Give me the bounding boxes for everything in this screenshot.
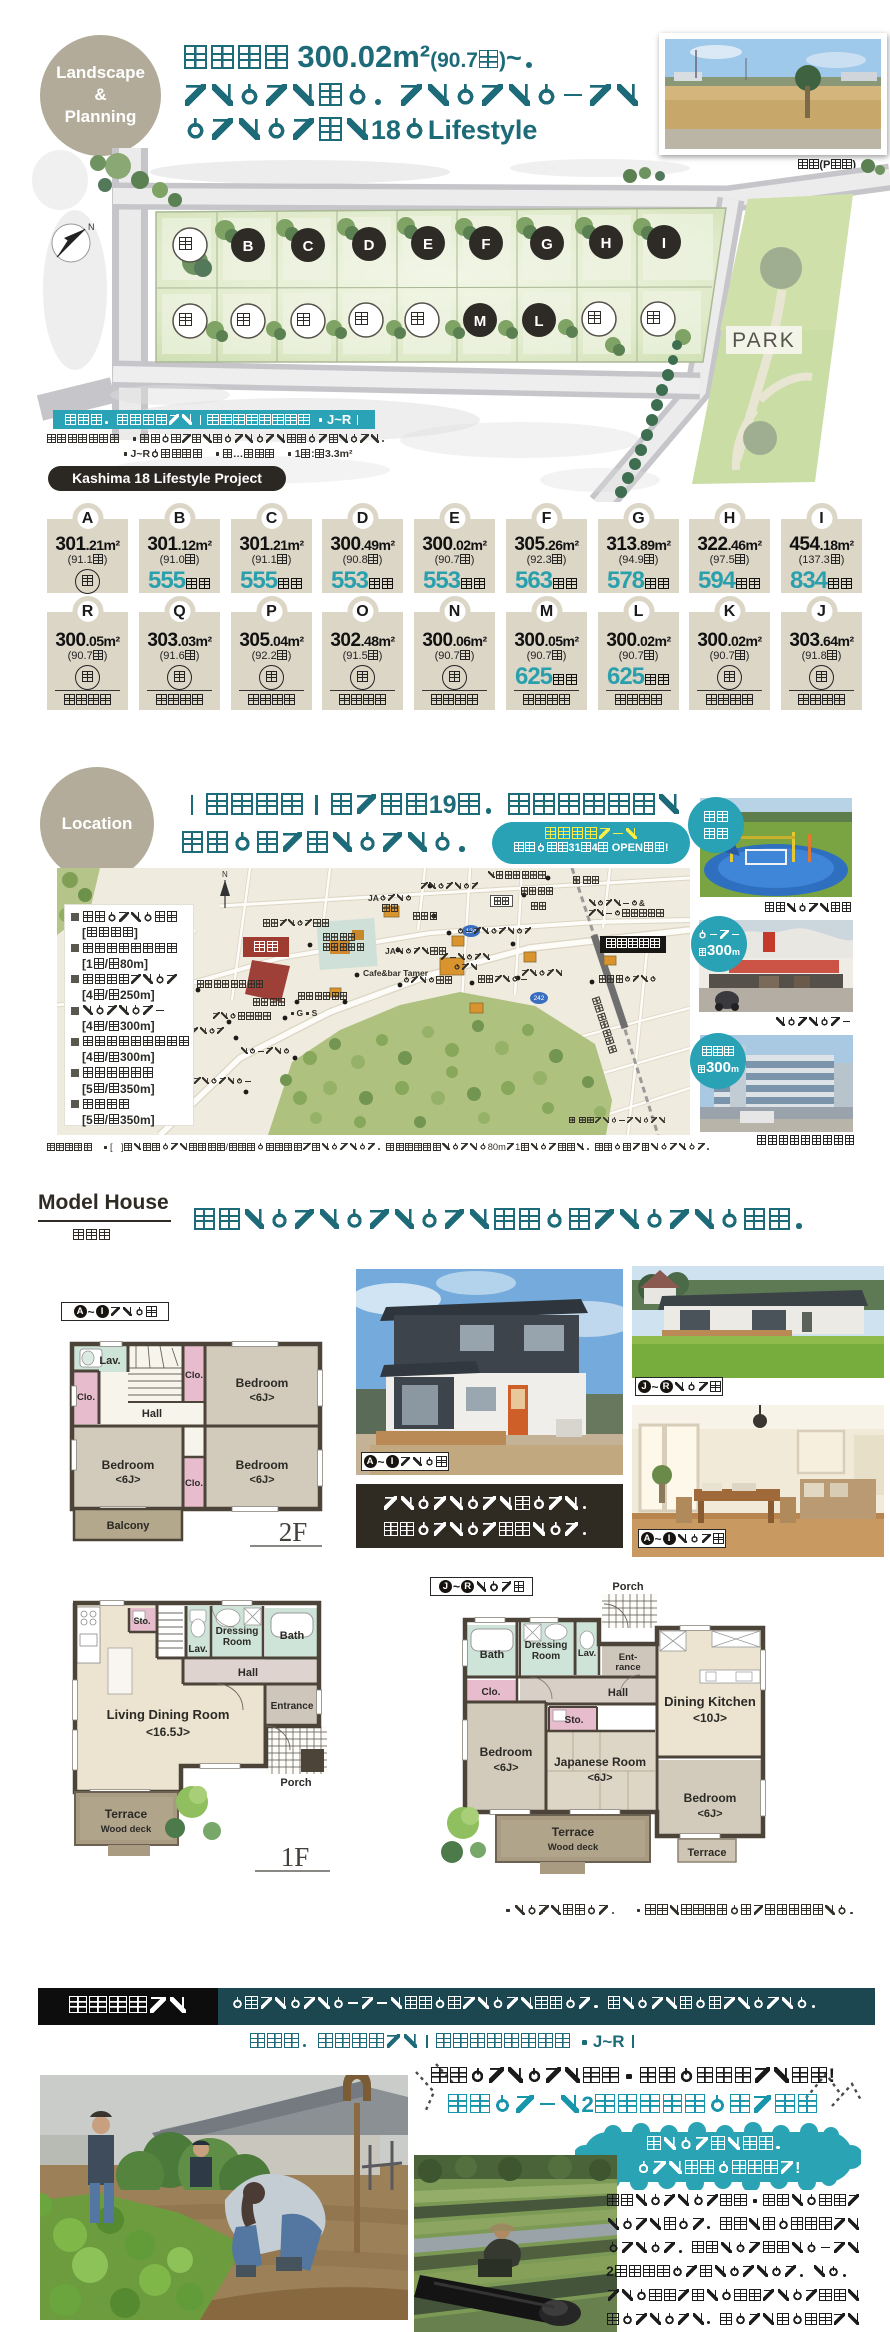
svg-text:Porch: Porch — [280, 1777, 311, 1789]
svg-text:Lav.: Lav. — [99, 1355, 120, 1367]
svg-text:Clo.: Clo. — [185, 1478, 203, 1489]
svg-text:Dining Kitchen: Dining Kitchen — [664, 1694, 756, 1709]
svg-text:Clo.: Clo. — [185, 1370, 203, 1381]
svg-text:Dressing: Dressing — [525, 1640, 568, 1651]
svg-text:Bedroom: Bedroom — [684, 1791, 737, 1805]
svg-text:Hall: Hall — [238, 1667, 258, 1679]
svg-text:<6J>: <6J> — [587, 1772, 612, 1784]
svg-text:H: H — [601, 235, 612, 252]
svg-text:M: M — [474, 313, 487, 330]
svg-text:Bedroom: Bedroom — [236, 1458, 289, 1472]
svg-text:Lav.: Lav. — [188, 1644, 207, 1655]
svg-text:Terrace: Terrace — [688, 1847, 727, 1859]
svg-text:Entrance: Entrance — [271, 1701, 314, 1712]
svg-text:Dressing: Dressing — [216, 1626, 259, 1637]
svg-text:Sto.: Sto. — [565, 1715, 584, 1726]
svg-text:<6J>: <6J> — [249, 1474, 274, 1486]
svg-text:Sto.: Sto. — [134, 1616, 151, 1626]
svg-text:Room: Room — [223, 1637, 251, 1648]
svg-text:G: G — [541, 236, 553, 253]
svg-text:Terrace: Terrace — [552, 1825, 595, 1839]
svg-text:F: F — [481, 236, 490, 253]
svg-text:Room: Room — [532, 1651, 560, 1662]
svg-text:Wood deck: Wood deck — [548, 1842, 599, 1853]
svg-text:rance: rance — [615, 1662, 640, 1673]
svg-text:Wood deck: Wood deck — [101, 1824, 152, 1835]
svg-text:Porch: Porch — [612, 1581, 643, 1593]
svg-text:Bath: Bath — [480, 1649, 505, 1661]
svg-text:1F: 1F — [281, 1842, 310, 1872]
svg-text:Lav.: Lav. — [578, 1648, 596, 1659]
svg-text:B: B — [243, 238, 254, 255]
svg-text:Clo.: Clo. — [482, 1687, 501, 1698]
svg-text:Bedroom: Bedroom — [102, 1458, 155, 1472]
svg-text:Hall: Hall — [608, 1687, 628, 1699]
svg-text:<6J>: <6J> — [249, 1392, 274, 1404]
svg-text:Japanese Room: Japanese Room — [554, 1755, 646, 1769]
svg-text:<6J>: <6J> — [493, 1762, 518, 1774]
svg-text:N: N — [222, 870, 228, 879]
svg-text:<6J>: <6J> — [115, 1474, 140, 1486]
svg-text:N: N — [88, 222, 95, 232]
svg-text:Hall: Hall — [142, 1408, 162, 1420]
svg-text:Terrace: Terrace — [105, 1807, 148, 1821]
svg-text:Bedroom: Bedroom — [236, 1376, 289, 1390]
svg-text:L: L — [534, 313, 543, 330]
svg-text:242: 242 — [534, 995, 545, 1002]
svg-text:2F: 2F — [279, 1517, 308, 1547]
svg-text:Bath: Bath — [280, 1630, 305, 1642]
svg-text:<6J>: <6J> — [697, 1808, 722, 1820]
svg-text:Clo.: Clo. — [77, 1392, 95, 1403]
svg-text:Balcony: Balcony — [107, 1520, 151, 1532]
svg-text:D: D — [364, 237, 375, 254]
svg-text:PARK: PARK — [732, 329, 796, 352]
svg-text:Living Dining Room: Living Dining Room — [107, 1707, 230, 1722]
svg-text:<10J>: <10J> — [693, 1711, 727, 1725]
svg-text:E: E — [423, 236, 433, 253]
svg-text:I: I — [662, 235, 666, 252]
svg-text:<16.5J>: <16.5J> — [146, 1725, 190, 1739]
svg-text:C: C — [303, 238, 314, 255]
svg-text:Bedroom: Bedroom — [480, 1745, 533, 1759]
